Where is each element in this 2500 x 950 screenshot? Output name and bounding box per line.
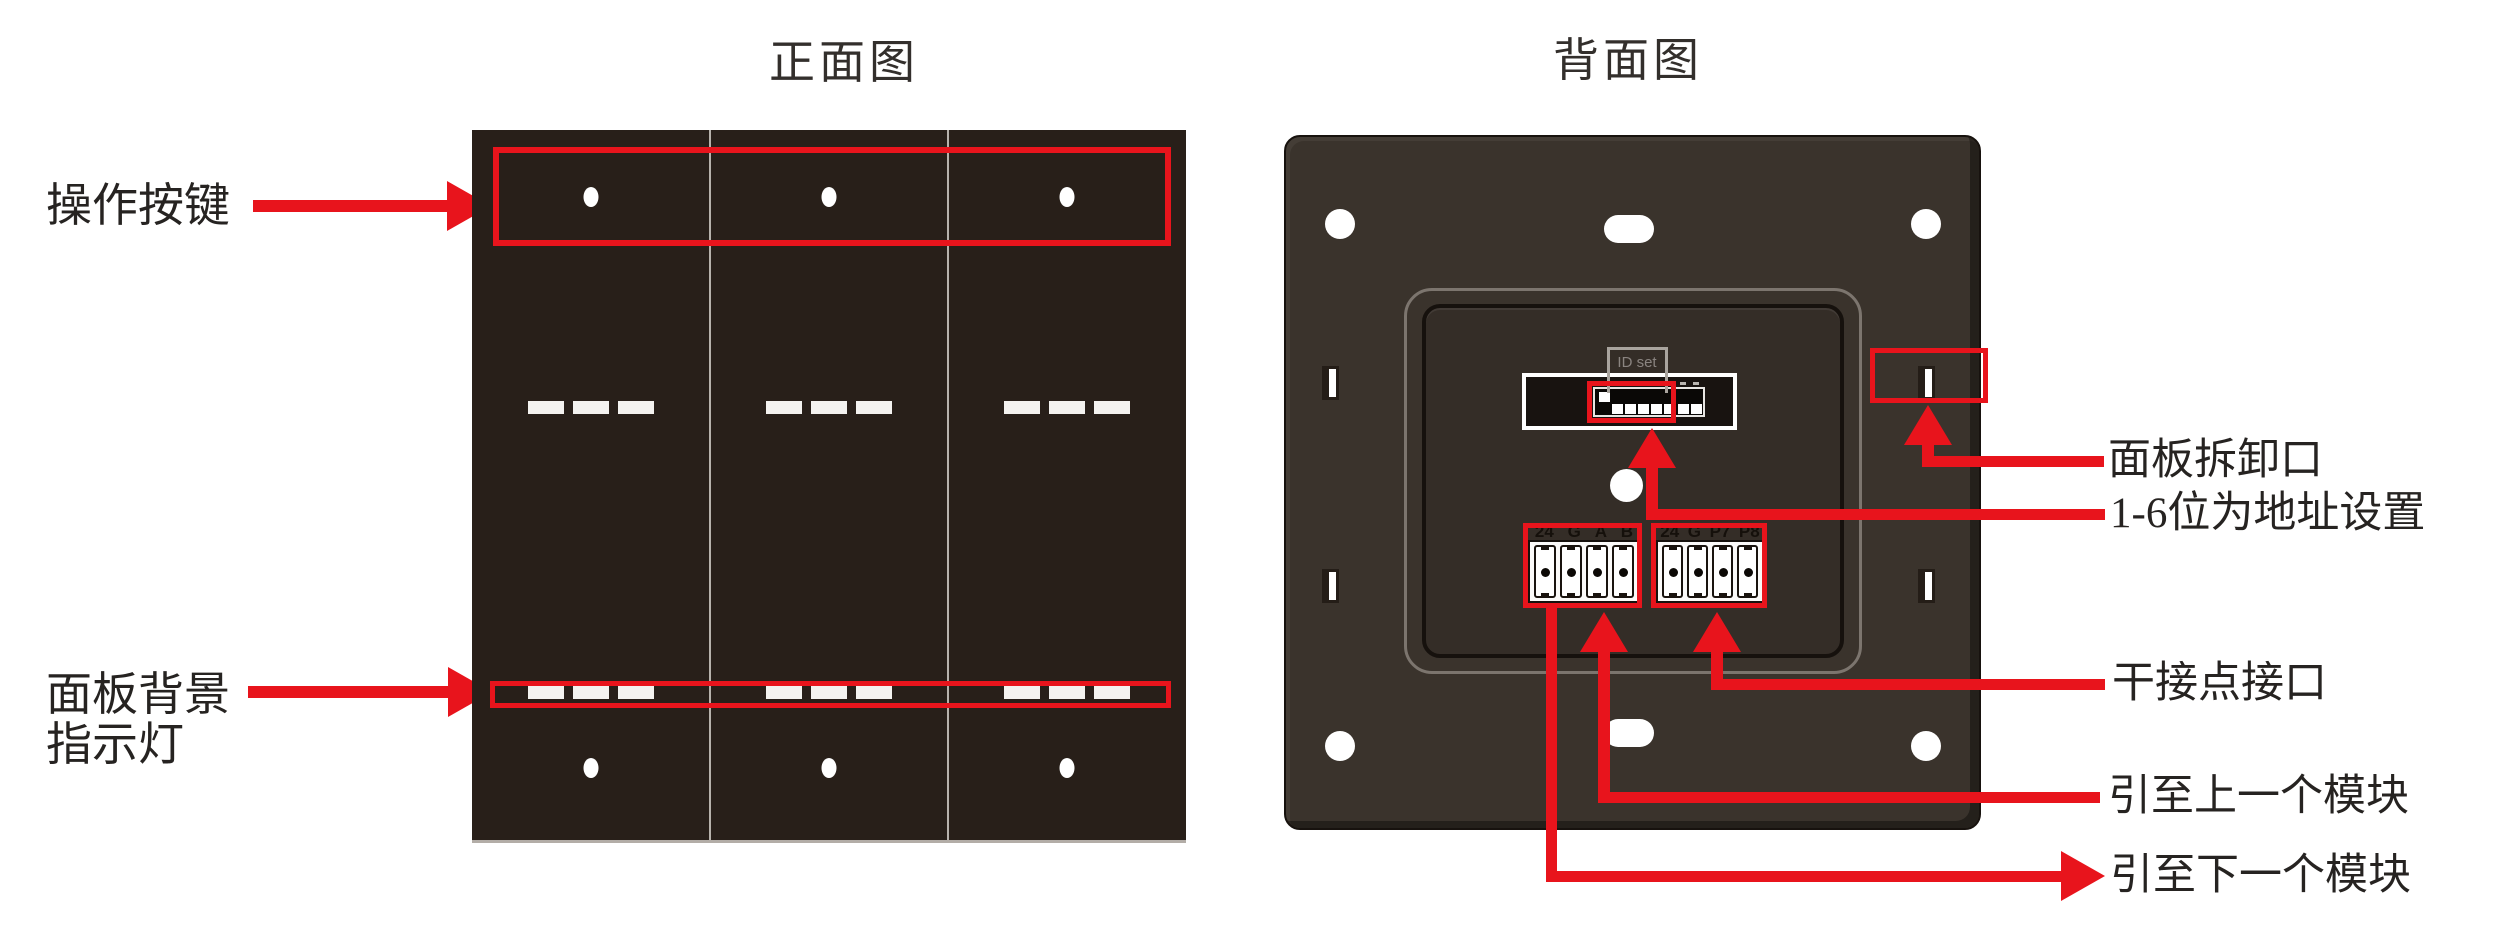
operation-button-dot bbox=[584, 758, 599, 778]
backlight-label: 面板背景 指示灯 bbox=[46, 670, 230, 770]
button-marker-dash bbox=[528, 401, 564, 414]
to-next-line-vertical bbox=[1546, 603, 1557, 882]
removal-port-line-horizontal bbox=[1922, 456, 2104, 467]
operation-buttons-label: 操作按键 bbox=[46, 181, 230, 231]
dry-contact-line-horizontal bbox=[1711, 679, 2105, 690]
button-marker-dash bbox=[856, 401, 892, 414]
idset-bracket bbox=[1607, 347, 1668, 350]
to-next-module-label: 引至下一个模块 bbox=[2110, 853, 2411, 899]
dip-switch-handle-7 bbox=[1678, 404, 1689, 414]
mounting-slot bbox=[1604, 215, 1654, 243]
removal-port-label: 面板拆卸口 bbox=[2108, 438, 2323, 484]
backlight-label-line1: 面板背景 bbox=[46, 670, 230, 720]
address-line-horizontal bbox=[1646, 509, 2105, 520]
removal-port-highlight-box bbox=[1870, 348, 1988, 403]
button-marker-dash bbox=[618, 401, 654, 414]
dry-contact-arrowhead-icon bbox=[1693, 612, 1741, 652]
panel-release-clip bbox=[1322, 366, 1339, 400]
button-marker-dash bbox=[1049, 401, 1085, 414]
mounting-hole bbox=[1911, 209, 1941, 239]
button-marker-dash bbox=[811, 401, 847, 414]
removal-port-arrowhead-icon bbox=[1904, 405, 1952, 445]
to-previous-module-label: 引至上一个模块 bbox=[2108, 774, 2409, 820]
mounting-slot bbox=[1604, 719, 1654, 747]
button-marker-row bbox=[528, 401, 654, 414]
front-view-title: 正面图 bbox=[714, 26, 974, 92]
address-dip-highlight-box bbox=[1587, 381, 1676, 423]
address-arrowhead-icon bbox=[1628, 428, 1676, 468]
panel-release-clip bbox=[1322, 569, 1339, 603]
button-marker-dash bbox=[766, 401, 802, 414]
dip-switch-handle-8 bbox=[1691, 404, 1702, 414]
mounting-hole bbox=[1325, 731, 1355, 761]
to-previous-line-horizontal bbox=[1598, 792, 2100, 803]
operation-button-dot bbox=[1060, 758, 1075, 778]
front-panel bbox=[472, 130, 1186, 840]
backlight-label-line2: 指示灯 bbox=[46, 720, 230, 770]
button-marker-dash bbox=[1004, 401, 1040, 414]
button-marker-dash bbox=[573, 401, 609, 414]
center-screw-hole bbox=[1610, 469, 1643, 502]
operation-buttons-highlight-box bbox=[493, 147, 1171, 246]
operation-button-dot bbox=[822, 758, 837, 778]
address-setting-label: 1-6位为地址设置 bbox=[2110, 491, 2425, 537]
dry-contact-highlight-box bbox=[1651, 523, 1767, 608]
idset-label: ID set bbox=[1607, 354, 1667, 371]
backlight-highlight-box bbox=[490, 681, 1171, 708]
diagram-stage: 正面图 背面图 操作按键 面板背景 指示灯 bbox=[0, 0, 2500, 950]
operation-buttons-arrow-shaft bbox=[253, 200, 449, 212]
to-next-arrowhead-icon bbox=[2061, 851, 2105, 901]
to-previous-line-vertical bbox=[1598, 650, 1610, 803]
to-previous-arrowhead-icon bbox=[1580, 612, 1628, 652]
button-marker-dash bbox=[1094, 401, 1130, 414]
dry-contact-label: 干接点接口 bbox=[2112, 661, 2327, 707]
button-marker-row bbox=[1004, 401, 1130, 414]
dip-tick bbox=[1693, 382, 1699, 385]
backlight-arrow-shaft bbox=[248, 686, 449, 698]
bus-terminal-highlight-box bbox=[1523, 523, 1642, 608]
mounting-hole bbox=[1325, 209, 1355, 239]
button-marker-row bbox=[766, 401, 892, 414]
to-next-line-horizontal bbox=[1546, 871, 2063, 882]
dip-tick bbox=[1680, 382, 1686, 385]
mounting-hole bbox=[1911, 731, 1941, 761]
panel-release-clip bbox=[1918, 569, 1935, 603]
back-view-title: 背面图 bbox=[1498, 24, 1758, 90]
